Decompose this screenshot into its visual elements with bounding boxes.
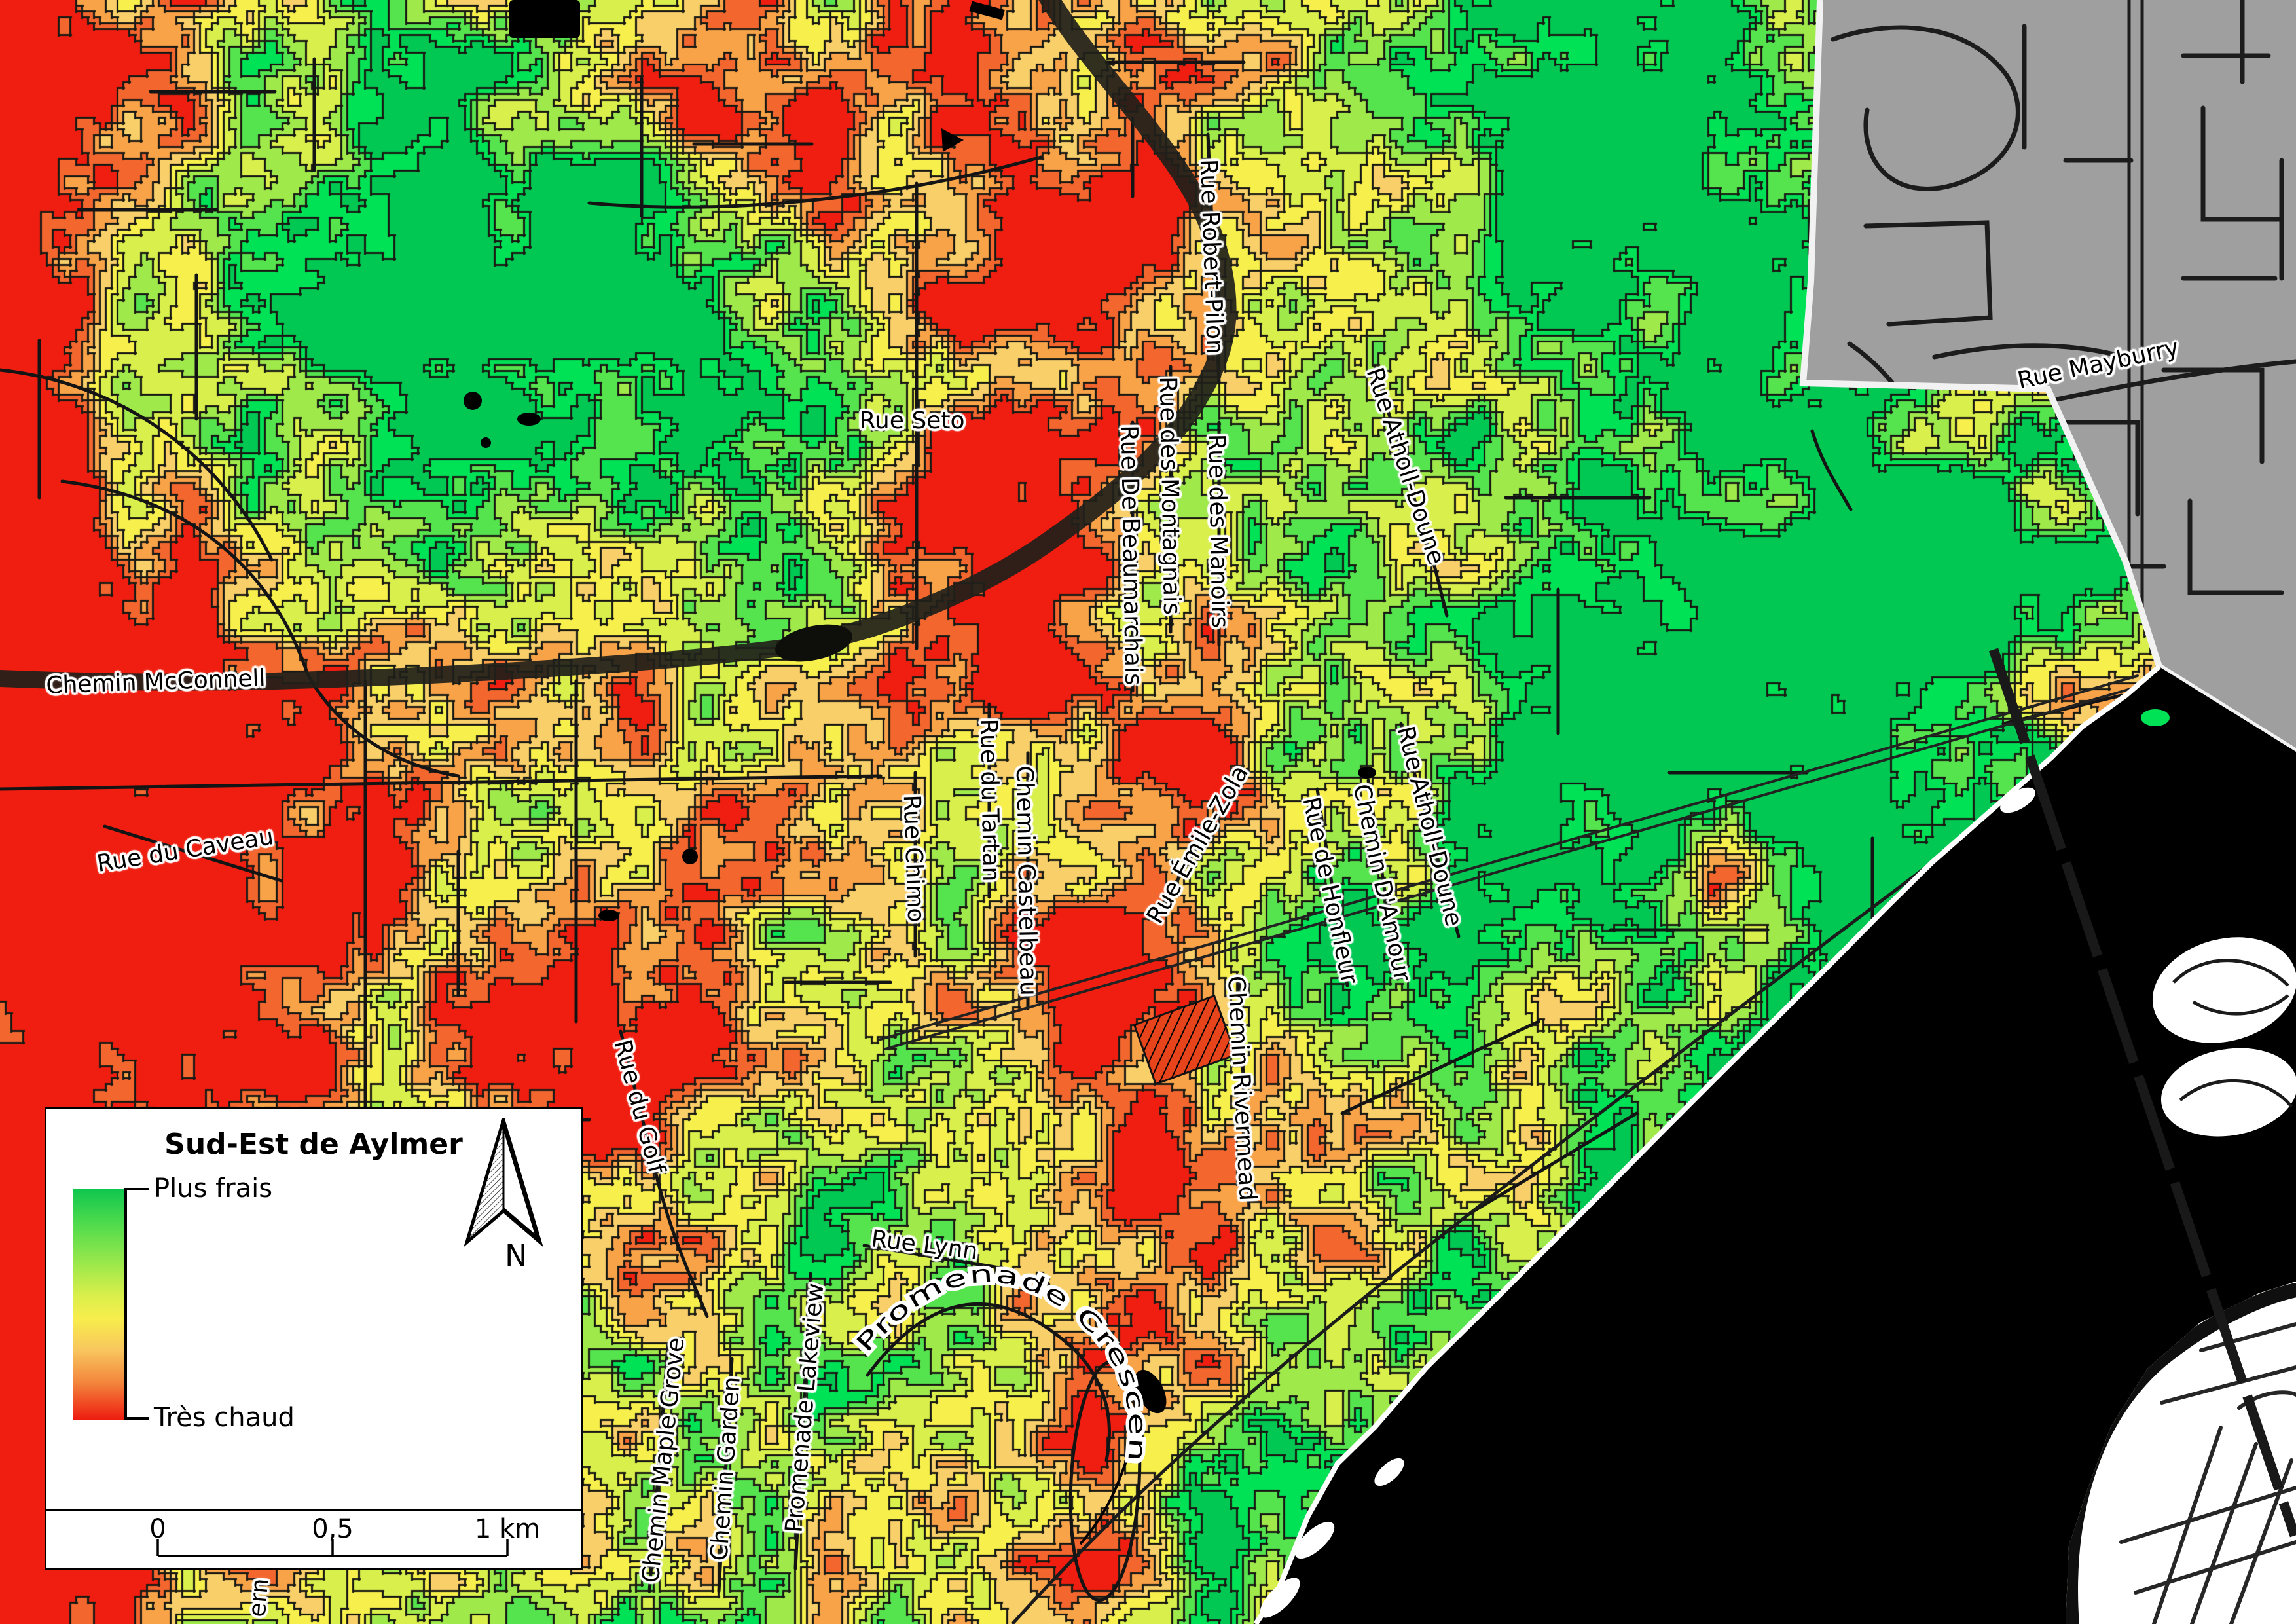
north-arrow-icon	[438, 1118, 569, 1249]
arrow-marker	[941, 128, 964, 152]
green-islet	[2141, 709, 2170, 726]
legend-divider	[46, 1509, 581, 1511]
map-stage: Promenade Crescent Rue SetoChemin McConn…	[0, 0, 2296, 1624]
pond	[517, 413, 541, 426]
pond	[682, 849, 698, 864]
legend-tick-bottom	[124, 1417, 149, 1420]
north-label: N	[505, 1238, 527, 1273]
legend-gradient-bar	[73, 1189, 127, 1420]
legend-cool-label: Plus frais	[154, 1173, 272, 1204]
hatched-zone	[1135, 996, 1236, 1084]
legend-panel: Sud-Est de Aylmer Plus frais Très chaud …	[45, 1107, 583, 1570]
pond	[598, 910, 619, 921]
pond	[464, 392, 482, 410]
pond	[481, 437, 491, 448]
legend-hot-label: Très chaud	[154, 1403, 295, 1433]
pond-dash	[970, 1, 1005, 20]
pond-rect	[509, 0, 580, 38]
outside-area-gray	[1796, 0, 2296, 752]
legend-tick-top	[124, 1188, 149, 1190]
highway-road	[812, 0, 1227, 644]
mcconnell-road	[0, 644, 812, 682]
map-features	[464, 0, 1376, 1602]
pond	[1358, 767, 1376, 779]
scale-bar	[46, 1528, 585, 1568]
